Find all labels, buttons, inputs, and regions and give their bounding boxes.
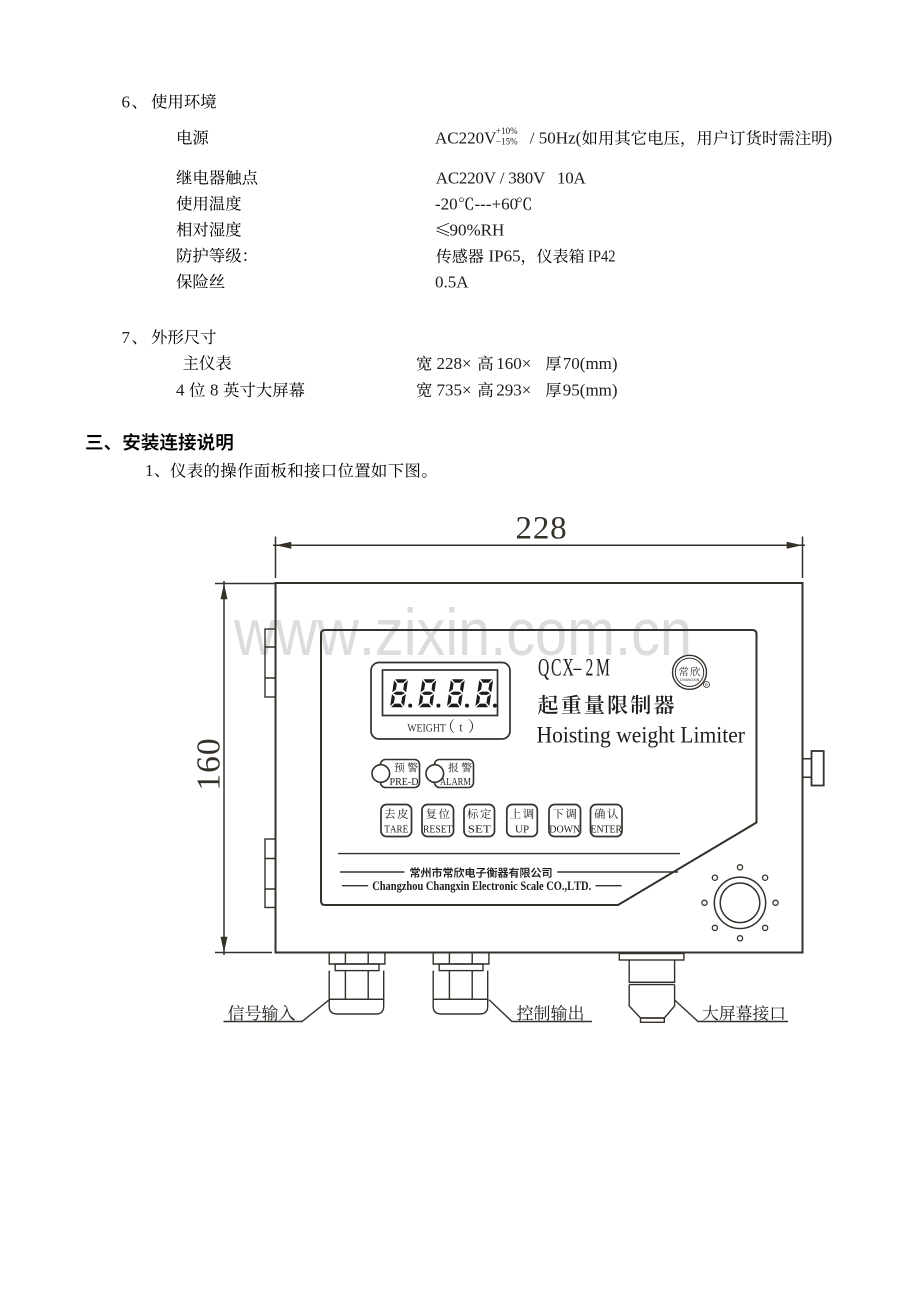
svg-text:293×: 293×	[496, 381, 531, 400]
svg-text:CHANGXIN: CHANGXIN	[680, 678, 700, 682]
svg-text:---+60: ---+60	[475, 195, 519, 214]
svg-text:95(mm): 95(mm)	[563, 381, 618, 400]
svg-text:SET: SET	[468, 825, 492, 836]
svg-text:1: 1	[145, 461, 154, 480]
svg-text:7: 7	[122, 328, 131, 347]
svg-text:Changzhou Changxin Electronic: Changzhou Changxin Electronic Scale CO.,…	[372, 879, 591, 893]
svg-text:–: –	[573, 653, 582, 682]
svg-text:R: R	[705, 682, 708, 687]
svg-text:ENTER: ENTER	[591, 825, 623, 836]
svg-text:TARE: TARE	[384, 825, 408, 836]
svg-text:DOWN: DOWN	[549, 825, 580, 836]
svg-text:+10%: +10%	[496, 126, 518, 136]
svg-text:ALARM: ALARM	[440, 777, 472, 788]
svg-text:PRE-D: PRE-D	[390, 777, 419, 788]
svg-text:IP42: IP42	[588, 247, 616, 266]
svg-text:90%RH: 90%RH	[450, 221, 505, 240]
svg-text:IP65: IP65	[489, 247, 521, 266]
svg-text:0.5A: 0.5A	[435, 273, 469, 292]
svg-text:6: 6	[122, 93, 131, 112]
svg-text:t: t	[459, 721, 463, 735]
svg-text:228×: 228×	[437, 354, 472, 373]
svg-text:C: C	[551, 653, 561, 682]
svg-text:735×: 735×	[437, 381, 472, 400]
svg-text:2: 2	[586, 653, 594, 682]
svg-text:160×: 160×	[496, 354, 531, 373]
svg-text:RESET: RESET	[423, 825, 453, 836]
svg-text:70(mm): 70(mm)	[563, 354, 618, 373]
svg-text:8: 8	[210, 381, 219, 400]
svg-text:4: 4	[176, 381, 185, 400]
svg-text:): )	[827, 129, 833, 148]
svg-text:−15%: −15%	[496, 137, 518, 147]
svg-text:228: 228	[516, 511, 568, 547]
svg-text:AC220V: AC220V	[435, 129, 497, 148]
svg-text:M: M	[596, 653, 610, 682]
svg-text:Q: Q	[538, 653, 549, 682]
svg-text:/ 50Hz(: / 50Hz(	[530, 129, 582, 148]
svg-text:WEIGHT: WEIGHT	[407, 721, 446, 735]
svg-text:AC220V / 380V 10A: AC220V / 380V 10A	[436, 169, 587, 188]
svg-text:Hoisting weight Limiter: Hoisting weight Limiter	[537, 723, 746, 748]
svg-text:UP: UP	[515, 825, 529, 836]
svg-text:-20: -20	[435, 195, 458, 214]
svg-text:160: 160	[190, 737, 227, 790]
svg-text:X: X	[563, 653, 574, 682]
svg-text:www.zixin.com.cn: www.zixin.com.cn	[233, 595, 692, 669]
